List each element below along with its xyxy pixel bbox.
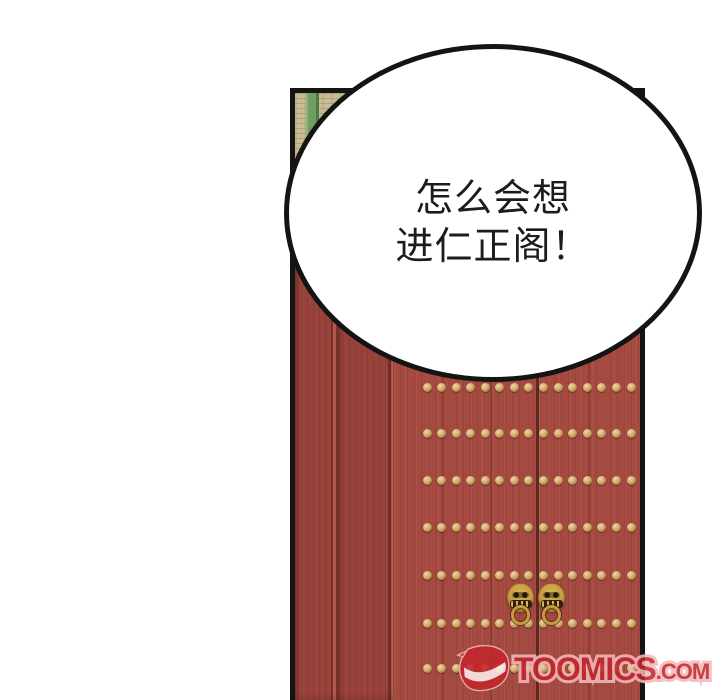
door-stud	[423, 523, 432, 532]
door-stud	[539, 383, 548, 392]
speech-bubble: 怎么会想 进仁正阁！	[284, 44, 702, 382]
door-stud	[495, 383, 504, 392]
door-stud	[597, 571, 606, 580]
door-stud	[423, 429, 432, 438]
door-stud	[568, 383, 577, 392]
door-stud	[466, 383, 475, 392]
door-stud	[627, 619, 636, 628]
door-stud	[423, 664, 432, 673]
door-stud	[437, 523, 446, 532]
door-stud	[481, 619, 490, 628]
door-stud	[583, 476, 592, 485]
comic-page: 怎么会想 进仁正阁！ TOOMICS TOOMICS .COM .COM	[0, 0, 720, 700]
door-stud	[437, 571, 446, 580]
knocker-eyes	[512, 592, 529, 598]
door-stud	[554, 476, 563, 485]
door-stud	[481, 429, 490, 438]
door-stud	[510, 429, 519, 438]
door-stud	[466, 523, 475, 532]
door-stud	[466, 571, 475, 580]
door-stud	[568, 523, 577, 532]
door-stud	[612, 429, 621, 438]
door-stud	[568, 571, 577, 580]
door-stud	[452, 571, 461, 580]
door-stud	[466, 476, 475, 485]
door-stud	[495, 429, 504, 438]
door-stud	[452, 383, 461, 392]
door-stud	[554, 523, 563, 532]
door-knocker	[507, 583, 535, 629]
door-stud	[597, 619, 606, 628]
door-stud	[466, 619, 475, 628]
door-stud	[597, 383, 606, 392]
door-stud	[524, 523, 533, 532]
door-stud	[495, 619, 504, 628]
door-stud	[539, 476, 548, 485]
door-stud	[539, 571, 548, 580]
door-stud	[437, 476, 446, 485]
door-stud	[612, 523, 621, 532]
speech-text: 怎么会想 进仁正阁！	[395, 155, 590, 271]
door-stud	[437, 664, 446, 673]
knocker-ring	[542, 605, 561, 625]
door-stud	[423, 571, 432, 580]
watermark-suffix: .COM .COM	[656, 661, 709, 683]
door-stud	[510, 383, 519, 392]
door-stud	[452, 619, 461, 628]
door-stud	[583, 429, 592, 438]
door-stud	[423, 383, 432, 392]
door-stud	[466, 429, 475, 438]
door-stud	[524, 383, 533, 392]
door-stud	[452, 429, 461, 438]
door-stud	[495, 571, 504, 580]
door-stud	[481, 383, 490, 392]
door-stud	[583, 523, 592, 532]
door-stud	[627, 383, 636, 392]
knocker-eyes	[543, 592, 560, 598]
door-stud	[539, 429, 548, 438]
door-stud	[510, 571, 519, 580]
door-stud	[568, 476, 577, 485]
door-knocker	[538, 583, 566, 629]
door-stud	[568, 429, 577, 438]
door-stud	[481, 476, 490, 485]
watermark-text: TOOMICS TOOMICS	[514, 653, 656, 685]
door-stud	[597, 523, 606, 532]
door-stud	[510, 523, 519, 532]
door-stud	[627, 429, 636, 438]
door-stud	[495, 523, 504, 532]
door-stud	[510, 476, 519, 485]
door-stud	[612, 383, 621, 392]
toomics-logo-icon	[456, 644, 512, 694]
door-stud	[568, 619, 577, 628]
door-stud	[597, 429, 606, 438]
speech-line-2: 进仁正阁！	[395, 223, 590, 271]
door-stud	[612, 571, 621, 580]
door-stud	[554, 429, 563, 438]
door-stud	[627, 476, 636, 485]
door-stud	[524, 476, 533, 485]
door-stud	[481, 523, 490, 532]
door-stud	[583, 383, 592, 392]
door-stud	[554, 383, 563, 392]
door-stud	[423, 476, 432, 485]
door-stud	[612, 619, 621, 628]
door-stud	[524, 571, 533, 580]
knocker-ring	[511, 605, 530, 625]
door-stud	[481, 571, 490, 580]
speech-line-1: 怎么会想	[395, 175, 590, 223]
door-stud	[423, 619, 432, 628]
door-stud	[597, 476, 606, 485]
door-stud	[583, 571, 592, 580]
door-stud	[452, 523, 461, 532]
door-stud	[437, 429, 446, 438]
door-stud	[437, 383, 446, 392]
door-stud	[583, 619, 592, 628]
door-stud	[452, 476, 461, 485]
watermark: TOOMICS TOOMICS .COM .COM	[456, 641, 709, 697]
door-stud	[627, 571, 636, 580]
door-stud	[495, 476, 504, 485]
door-stud	[627, 523, 636, 532]
door-stud	[539, 523, 548, 532]
door-stud	[437, 619, 446, 628]
door-stud	[524, 429, 533, 438]
door-stud	[554, 571, 563, 580]
door-stud	[612, 476, 621, 485]
